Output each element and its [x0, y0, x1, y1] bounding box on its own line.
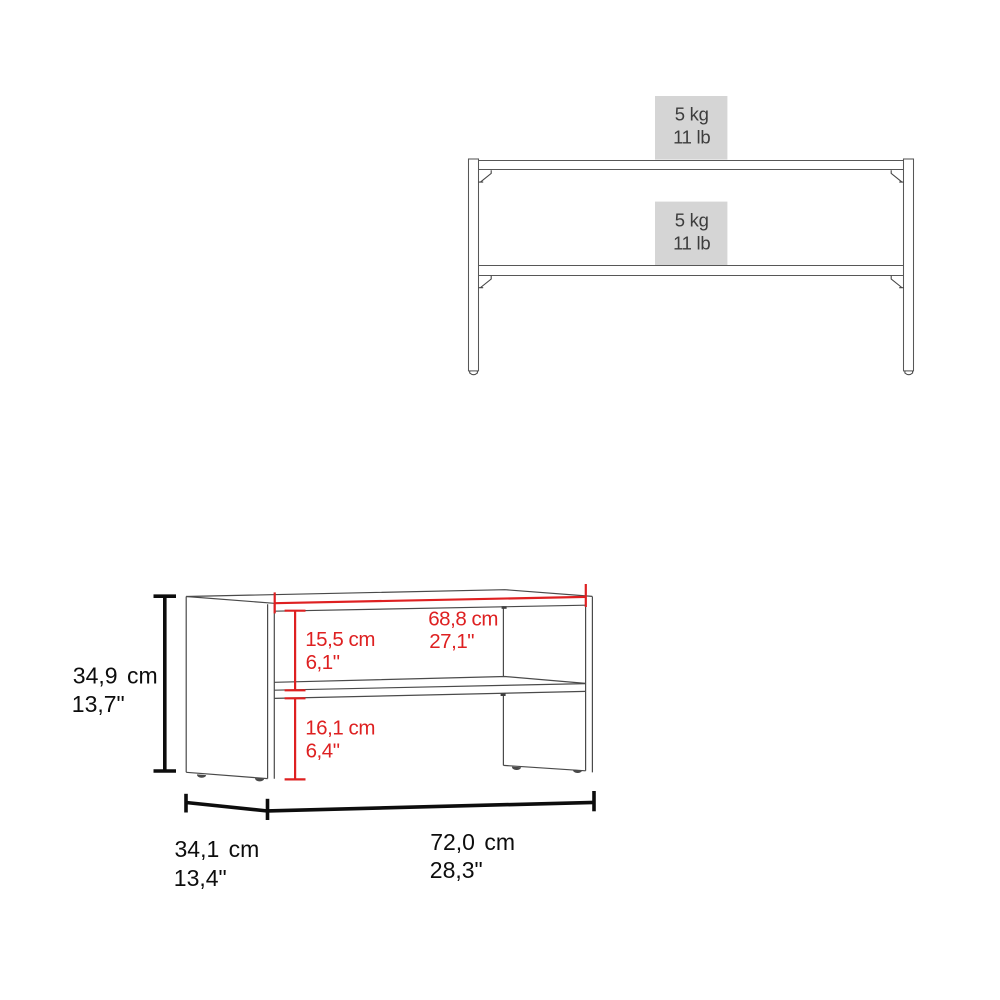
svg-text:28,3": 28,3" — [430, 857, 483, 883]
svg-text:11 lb: 11 lb — [673, 232, 710, 253]
svg-text:6,4": 6,4" — [306, 740, 340, 763]
svg-text:68,8 cm: 68,8 cm — [428, 607, 498, 630]
svg-text:34,1 cm: 34,1 cm — [175, 836, 260, 862]
svg-text:72,0 cm: 72,0 cm — [430, 829, 515, 855]
svg-text:11 lb: 11 lb — [673, 127, 710, 148]
svg-text:34,9 cm: 34,9 cm — [73, 662, 158, 688]
svg-text:6,1": 6,1" — [306, 651, 340, 674]
svg-text:27,1": 27,1" — [429, 630, 474, 653]
svg-text:13,4": 13,4" — [174, 865, 227, 891]
svg-text:5 kg: 5 kg — [675, 209, 709, 230]
svg-text:16,1 cm: 16,1 cm — [305, 717, 375, 740]
svg-text:5 kg: 5 kg — [675, 104, 709, 125]
svg-text:15,5 cm: 15,5 cm — [305, 628, 375, 651]
svg-text:13,7": 13,7" — [72, 691, 125, 717]
